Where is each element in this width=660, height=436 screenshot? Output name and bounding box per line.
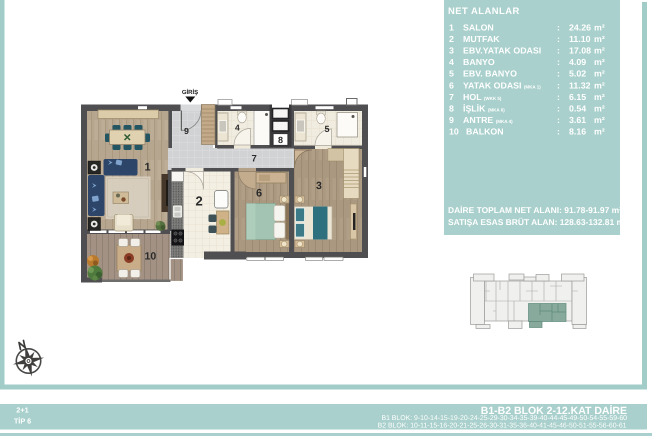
svg-text:17.08: 17.08 [569,46,591,56]
svg-text:11.32: 11.32 [569,80,591,90]
svg-text:9: 9 [449,115,454,125]
svg-text:2: 2 [449,34,454,44]
svg-text:EBV.YATAK ODASI: EBV.YATAK ODASI [463,46,541,56]
svg-text:m²: m² [594,115,605,125]
svg-text:m²: m² [594,92,605,102]
svg-text:B2 BLOK: 10-11-15-16-20-21-25-: B2 BLOK: 10-11-15-16-20-21-25-26-30-31-3… [378,423,627,430]
svg-text::: : [557,57,560,67]
svg-text:8: 8 [449,103,454,113]
svg-text:4.09: 4.09 [569,57,586,67]
svg-text::: : [557,103,560,113]
svg-text::: : [557,92,560,102]
svg-text:NET ALANLAR: NET ALANLAR [448,5,520,16]
svg-text:BALKON: BALKON [466,127,504,137]
svg-text::: : [557,115,560,125]
svg-text:1: 1 [449,23,454,33]
svg-text:GİRİŞ: GİRİŞ [182,88,198,96]
svg-text:6: 6 [449,80,454,90]
svg-text:DAİRE TOPLAM NET ALANI: 91.78-: DAİRE TOPLAM NET ALANI: 91.78-91.97 m² [448,205,622,215]
svg-text:m²: m² [594,34,605,44]
svg-text:10: 10 [145,251,157,263]
svg-text::: : [557,69,560,79]
svg-text:10: 10 [449,127,459,137]
svg-text::: : [557,46,560,56]
svg-text:m²: m² [594,127,605,137]
svg-text:8.16: 8.16 [569,127,586,137]
svg-text:5.02: 5.02 [569,69,586,79]
svg-text:24.26: 24.26 [569,23,591,33]
svg-text:5: 5 [449,69,454,79]
svg-text::: : [557,23,560,33]
svg-text:SALON: SALON [463,23,494,33]
svg-text:6: 6 [256,188,262,200]
svg-text::: : [557,127,560,137]
svg-text:2+1: 2+1 [16,406,28,415]
svg-text:8: 8 [278,135,283,145]
svg-text:3: 3 [316,180,322,192]
svg-text:m²: m² [594,69,605,79]
svg-text::: : [557,34,560,44]
svg-text:9: 9 [184,126,189,136]
svg-text:B1 BLOK: 9-10-14-15-19-20-24-2: B1 BLOK: 9-10-14-15-19-20-24-25-29-30-34… [381,415,627,422]
svg-text:m²: m² [594,23,605,33]
svg-text:3.61: 3.61 [569,115,586,125]
svg-text:3: 3 [449,46,454,56]
svg-text:1: 1 [145,162,151,174]
svg-text:7: 7 [449,92,454,102]
svg-text:0.54: 0.54 [569,103,586,113]
svg-text:m²: m² [594,103,605,113]
svg-text:7: 7 [252,154,257,165]
svg-text:4: 4 [449,57,454,67]
svg-text:m²: m² [594,57,605,67]
svg-text:EBV. BANYO: EBV. BANYO [463,69,517,79]
svg-text:BANYO: BANYO [463,57,495,67]
svg-text:6.15: 6.15 [569,92,586,102]
svg-text:11.10: 11.10 [569,34,591,44]
svg-text:m²: m² [594,80,605,90]
svg-text::: : [557,80,560,90]
svg-text:5: 5 [325,124,330,134]
svg-text:MUTFAK: MUTFAK [463,34,500,44]
svg-text:m²: m² [594,46,605,56]
svg-text:SATIŞA ESAS BRÜT ALAN: 128.63-: SATIŞA ESAS BRÜT ALAN: 128.63-132.81 m² [448,217,627,227]
svg-text:TİP 6: TİP 6 [14,417,31,426]
svg-text:4: 4 [235,123,240,133]
svg-text:2: 2 [196,194,203,209]
